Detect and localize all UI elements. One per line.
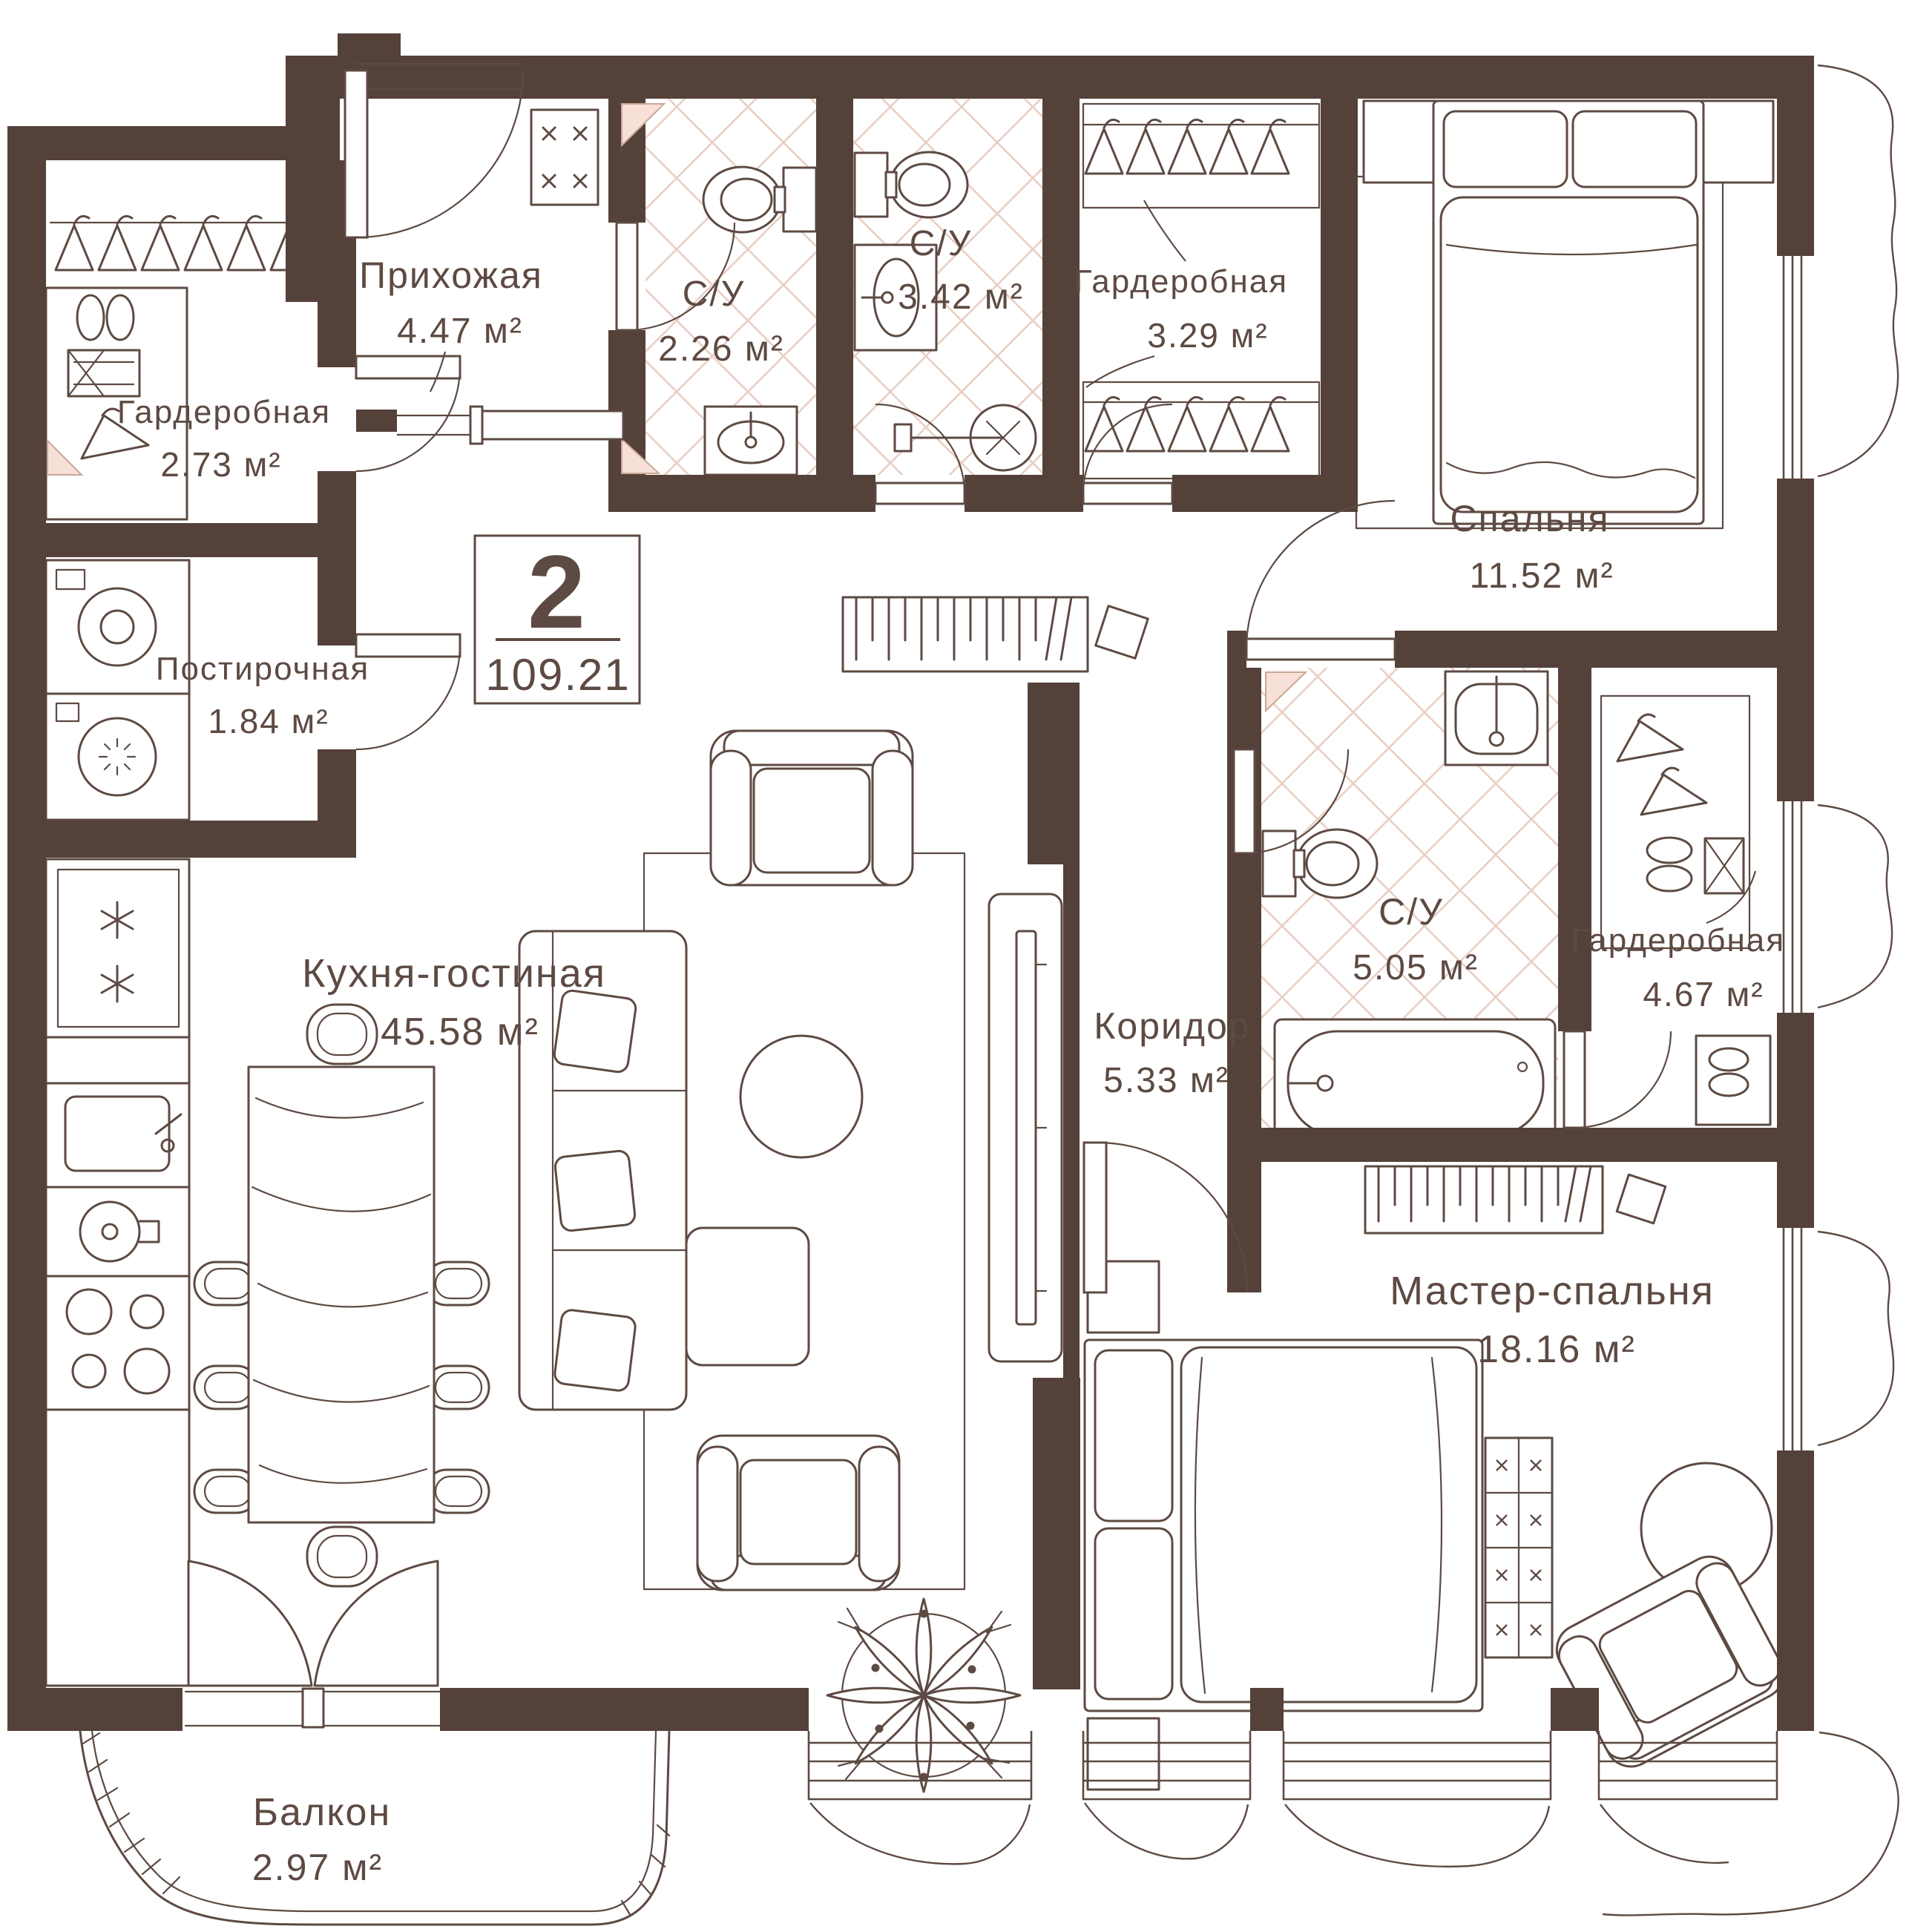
area-spalnya: 11.52 м²: [1470, 556, 1614, 596]
cooktop-icon: [46, 1276, 189, 1410]
label-prihozhaya: Прихожая: [359, 254, 543, 296]
area-garderob-329: 3.29 м²: [1147, 316, 1268, 355]
area-su-342: 3.42 м²: [898, 277, 1024, 317]
bed-icon: [1356, 101, 1773, 528]
radiator-icon: [843, 597, 1148, 671]
area-garderob-273: 2.73 м²: [160, 445, 281, 484]
sliding-door-hall: [397, 407, 623, 444]
area-su-226: 2.26 м²: [658, 329, 784, 369]
area-garderob-467: 4.67 м²: [1643, 975, 1764, 1013]
label-garderob-329: Гардеробная: [1074, 263, 1288, 300]
toilet-icon: [855, 152, 967, 217]
dryer-icon: [46, 694, 189, 820]
window-right-master: [1779, 1228, 1812, 1450]
window-bottom-master: [1284, 1731, 1551, 1799]
window-right-bath: [1779, 801, 1812, 1013]
label-postirochnaya: Постирочная: [156, 651, 369, 687]
door-wardrobe-467: [1564, 1031, 1671, 1128]
dining-table: [194, 1005, 489, 1586]
unit-badge: 2 109.21: [475, 533, 640, 703]
area-su-505: 5.05 м²: [1353, 948, 1479, 988]
area-balkon: 2.97 м²: [252, 1847, 383, 1888]
label-balkon: Балкон: [253, 1791, 391, 1834]
floor-plan: 2 109.21 Прихожая 4.47 м² С/У 2.26 м² С/…: [0, 0, 1932, 1932]
area-master: 18.16 м²: [1477, 1328, 1636, 1371]
bed-bench-icon: [1485, 1438, 1552, 1657]
plant-icon: [827, 1599, 1020, 1792]
coffee-table-icon: [740, 1036, 862, 1157]
radiator-icon: [1365, 1166, 1666, 1233]
vent-shaft-icon: [531, 110, 598, 205]
label-master: Мастер-спальня: [1390, 1269, 1715, 1313]
label-su-505: С/У: [1379, 891, 1444, 933]
label-kitchen-living: Кухня-гостиная: [302, 951, 606, 996]
sofa-icon: [519, 931, 809, 1410]
badge-area: 109.21: [485, 650, 631, 700]
label-su-226: С/У: [683, 275, 746, 314]
label-garderob-273: Гардеробная: [117, 394, 331, 430]
area-koridor: 5.33 м²: [1103, 1061, 1229, 1100]
lounge-chair-icon: [1548, 1548, 1792, 1775]
sink-icon: [705, 407, 797, 475]
area-kitchen-living: 45.58 м²: [381, 1011, 539, 1054]
toilet-icon: [703, 167, 816, 232]
tv-console-icon: [989, 894, 1062, 1361]
label-spalnya: Спальня: [1450, 498, 1610, 539]
kitchen-counter: [46, 859, 189, 1686]
label-koridor: Коридор: [1094, 1005, 1250, 1047]
armchair-icon: [711, 731, 913, 885]
label-su-342: С/У: [910, 224, 973, 263]
door-laundry: [356, 634, 460, 749]
area-prihozhaya: 4.47 м²: [397, 312, 523, 351]
sink-icon: [1445, 671, 1548, 765]
armchair-icon: [697, 1436, 899, 1590]
label-garderob-467: Гардеробная: [1571, 922, 1785, 959]
area-postirochnaya: 1.84 м²: [208, 702, 329, 740]
wardrobe-467-icons: [1601, 696, 1770, 1125]
toilet-icon: [1263, 829, 1377, 898]
window-right-bedroom: [1779, 256, 1812, 479]
badge-rooms: 2: [528, 533, 587, 650]
